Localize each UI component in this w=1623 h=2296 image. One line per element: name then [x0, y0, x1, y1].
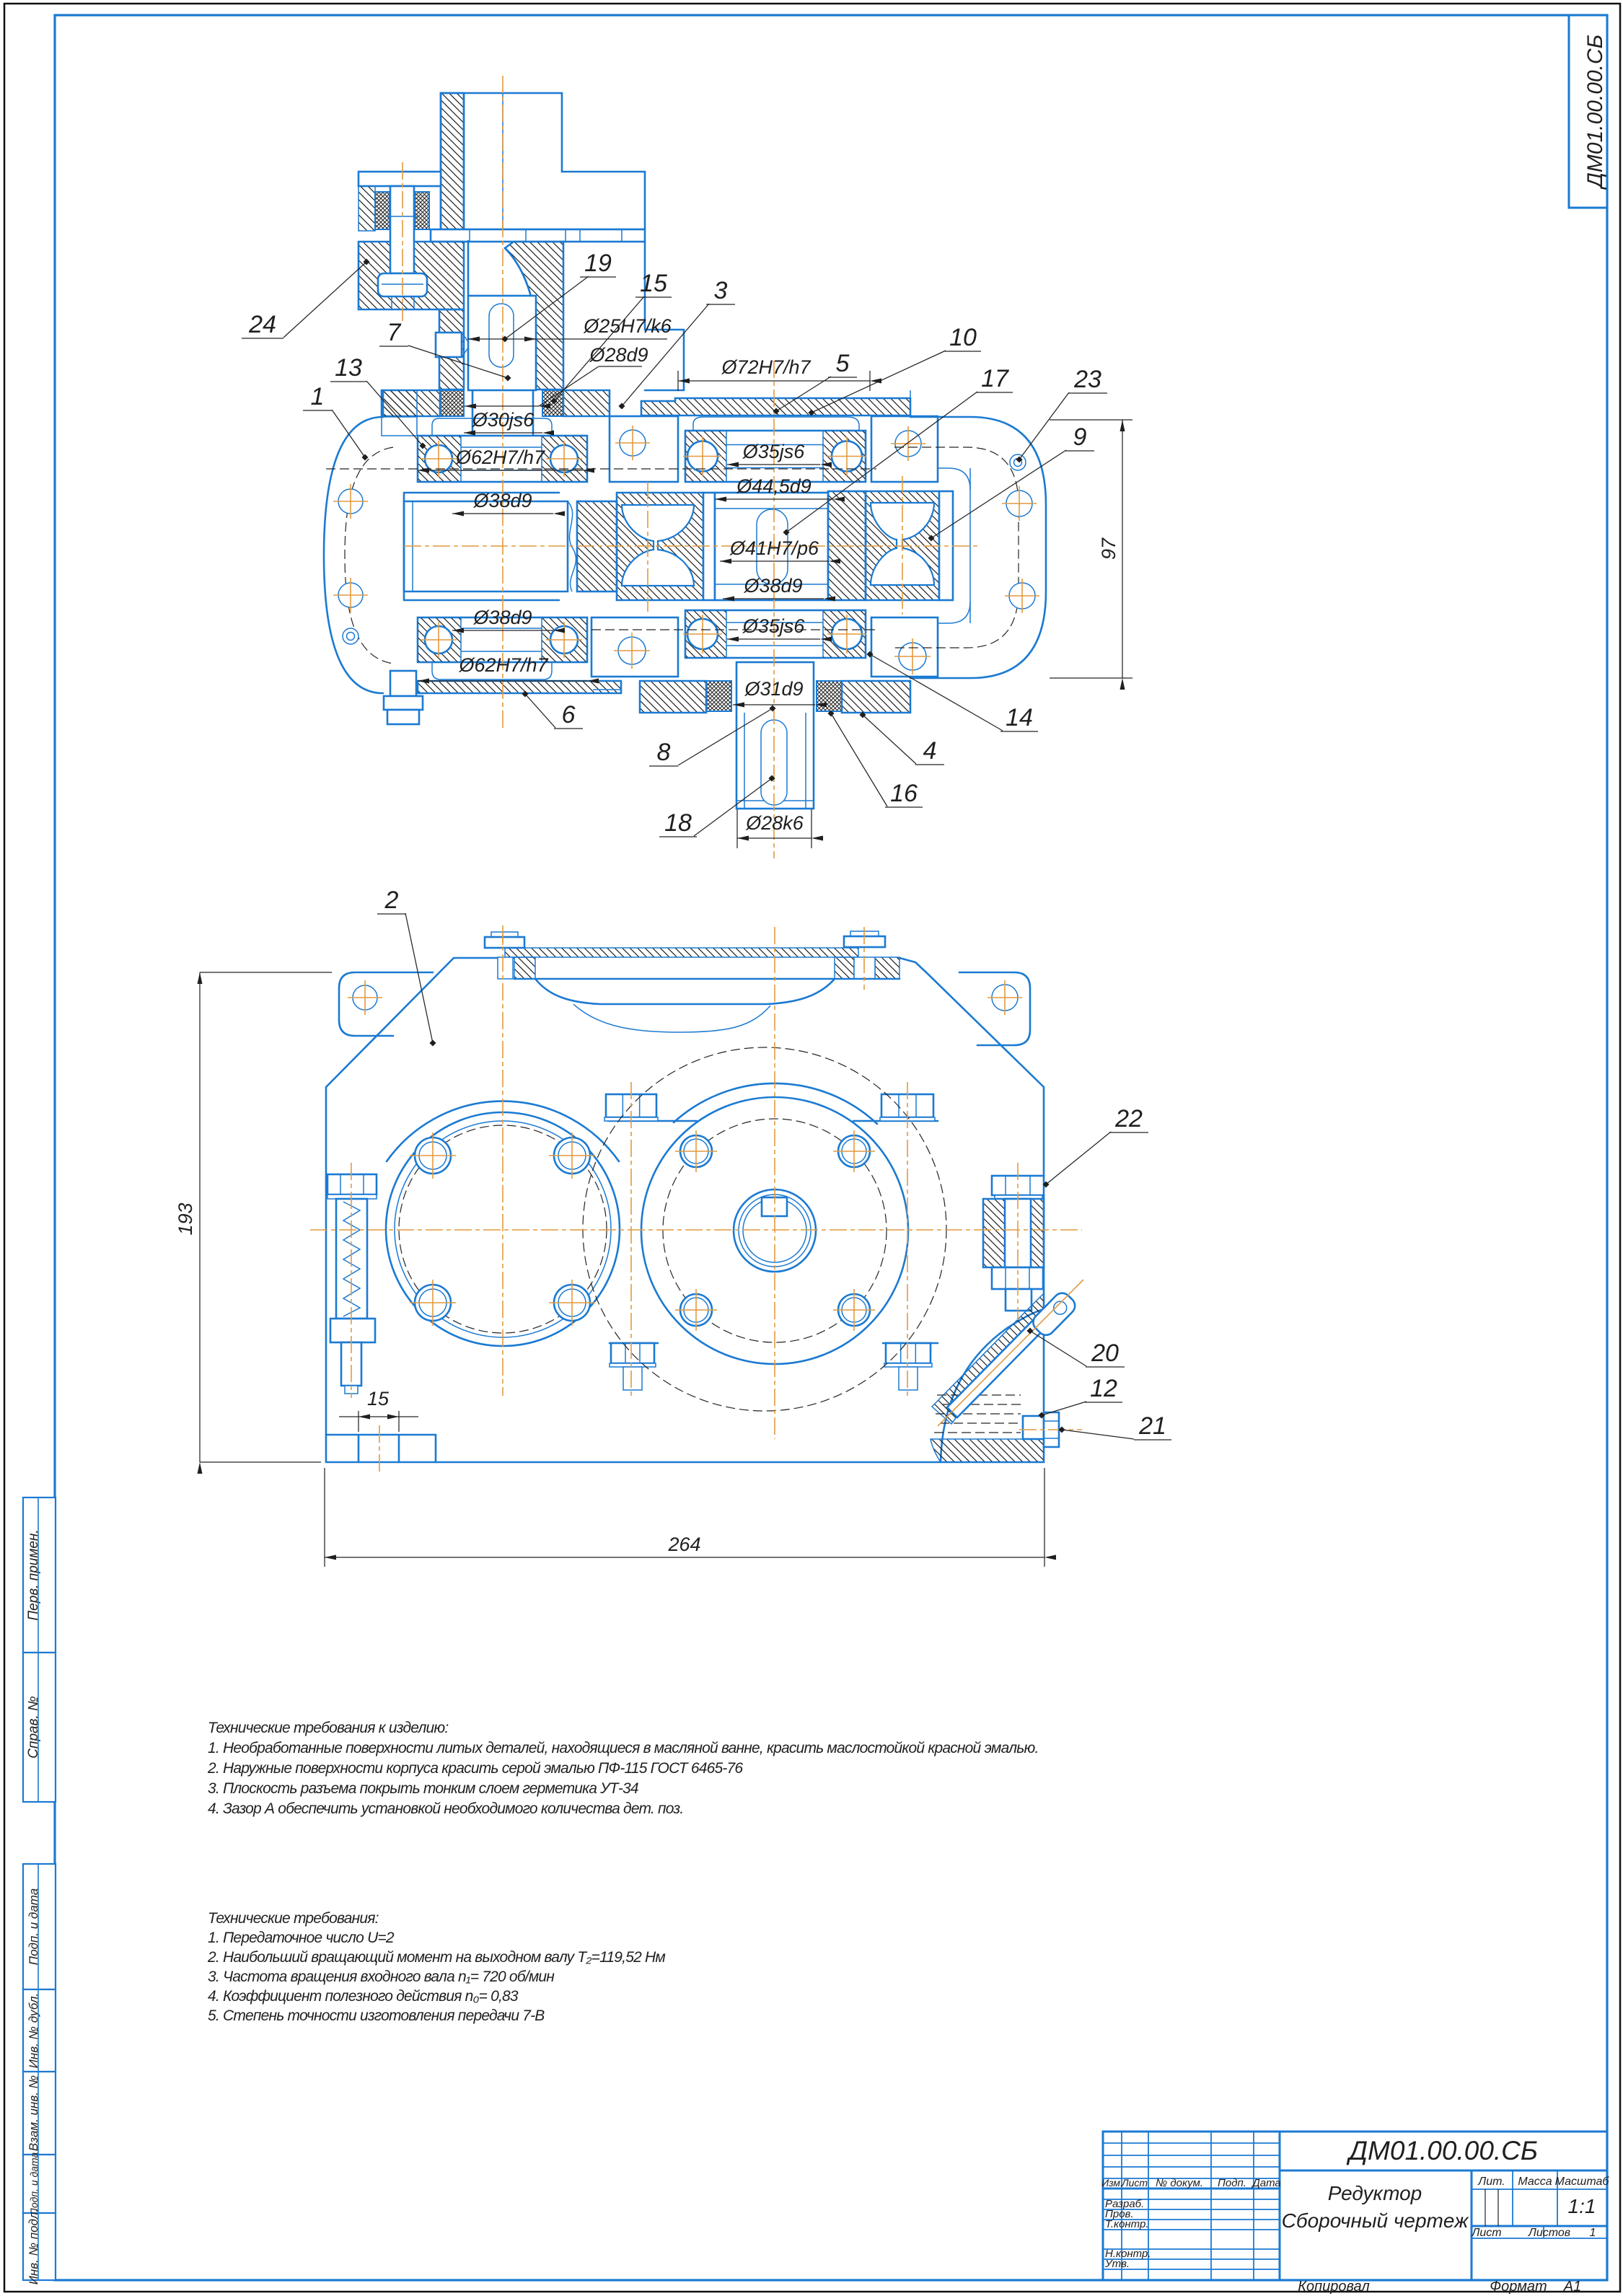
svg-text:Ø38d9: Ø38d9: [472, 490, 532, 511]
svg-text:1:1: 1:1: [1568, 2195, 1596, 2217]
svg-text:ДМ01.00.00.СБ: ДМ01.00.00.СБ: [1346, 2136, 1538, 2165]
svg-text:6: 6: [562, 701, 576, 729]
svg-text:4. Зазор А обеспечить установк: 4. Зазор А обеспечить установкой необход…: [208, 1800, 683, 1817]
svg-text:Сборочный чертеж: Сборочный чертеж: [1282, 2209, 1470, 2232]
svg-text:Ø72H7/h7: Ø72H7/h7: [721, 356, 811, 378]
svg-text:Дата: Дата: [1251, 2177, 1281, 2189]
svg-text:Перв. примен.: Перв. примен.: [26, 1529, 41, 1620]
svg-text:Ø28d9: Ø28d9: [589, 344, 648, 366]
svg-text:4. Коэффициент полезного дейст: 4. Коэффициент полезного действия n₀= 0,…: [208, 1988, 519, 2005]
svg-text:Подп.: Подп.: [1218, 2177, 1246, 2189]
svg-text:Формат: Формат: [1490, 2279, 1547, 2295]
svg-text:Справ. №: Справ. №: [26, 1696, 41, 1758]
svg-text:Редуктор: Редуктор: [1328, 2182, 1422, 2204]
svg-text:Ø25H7/k6: Ø25H7/k6: [583, 315, 672, 337]
svg-text:Лист: Лист: [1471, 2227, 1501, 2239]
svg-text:10: 10: [949, 324, 977, 351]
svg-text:Лит.: Лит.: [1477, 2176, 1505, 2188]
svg-text:Масштаб: Масштаб: [1555, 2176, 1610, 2188]
svg-text:3. Частота вращения входного в: 3. Частота вращения входного вала n₁= 72…: [208, 1969, 555, 1985]
svg-text:ДМ01.00.00.СБ: ДМ01.00.00.СБ: [1583, 35, 1607, 190]
svg-text:Масса: Масса: [1518, 2176, 1552, 2188]
svg-text:264: 264: [667, 1534, 700, 1555]
svg-text:7: 7: [387, 319, 402, 346]
svg-text:15: 15: [367, 1388, 390, 1409]
svg-text:Ø62H7/h7: Ø62H7/h7: [458, 654, 548, 676]
svg-text:Технические требования к издел: Технические требования к изделию:: [208, 1720, 448, 1736]
svg-text:19: 19: [584, 250, 612, 277]
svg-text:Ø44,5d9: Ø44,5d9: [736, 475, 811, 497]
svg-text:Ø38d9: Ø38d9: [743, 575, 802, 597]
svg-text:97: 97: [1098, 537, 1120, 560]
svg-text:21: 21: [1138, 1412, 1166, 1440]
svg-text:Ø35js6: Ø35js6: [742, 441, 806, 462]
svg-text:1: 1: [1590, 2227, 1596, 2239]
svg-text:3. Плоскость разъема покрыть т: 3. Плоскость разъема покрыть тонким слое…: [208, 1780, 638, 1797]
svg-text:№ докум.: № докум.: [1156, 2177, 1203, 2189]
svg-text:3: 3: [714, 277, 728, 304]
svg-text:4: 4: [923, 737, 937, 765]
svg-text:5: 5: [836, 350, 850, 377]
svg-text:Ø41H7/p6: Ø41H7/p6: [729, 537, 819, 559]
svg-text:Утв.: Утв.: [1104, 2258, 1130, 2270]
svg-text:2. Наибольший вращающий момент: 2. Наибольший вращающий момент на выходн…: [207, 1949, 665, 1966]
svg-text:14: 14: [1006, 704, 1033, 731]
svg-text:8: 8: [657, 739, 671, 766]
svg-text:17: 17: [981, 365, 1009, 392]
svg-text:5. Степень точности изготовлен: 5. Степень точности изготовления передач…: [208, 2007, 545, 2024]
svg-text:2. Наружные поверхности корпус: 2. Наружные поверхности корпуса красить …: [207, 1760, 743, 1777]
svg-text:A1: A1: [1563, 2279, 1581, 2295]
svg-text:1. Необработанные поверхности: 1. Необработанные поверхности литых дета…: [208, 1740, 1039, 1756]
svg-text:9: 9: [1073, 423, 1087, 451]
svg-text:Листов: Листов: [1528, 2227, 1570, 2239]
svg-text:24: 24: [248, 311, 276, 338]
svg-text:Технические требования:: Технические требования:: [208, 1910, 379, 1927]
svg-text:22: 22: [1114, 1105, 1143, 1132]
svg-text:18: 18: [664, 809, 692, 837]
svg-text:15: 15: [640, 270, 667, 297]
svg-text:Ø31d9: Ø31d9: [744, 678, 803, 700]
svg-text:20: 20: [1091, 1340, 1119, 1367]
svg-text:Изм.: Изм.: [1101, 2177, 1123, 2189]
svg-text:Ø28k6: Ø28k6: [745, 812, 804, 834]
svg-text:1. Передаточное число U=2: 1. Передаточное число U=2: [208, 1930, 395, 1946]
svg-text:Копировал: Копировал: [1298, 2279, 1369, 2295]
svg-text:193: 193: [175, 1202, 196, 1235]
svg-text:Т.контр.: Т.контр.: [1105, 2218, 1149, 2230]
svg-text:12: 12: [1090, 1375, 1117, 1402]
svg-text:23: 23: [1073, 366, 1101, 393]
svg-text:Ø30js6: Ø30js6: [472, 409, 535, 431]
svg-text:1: 1: [311, 383, 325, 410]
svg-text:13: 13: [335, 354, 362, 382]
svg-text:Лист: Лист: [1121, 2177, 1148, 2189]
svg-text:Ø38d9: Ø38d9: [472, 607, 532, 628]
svg-text:Ø62H7/h7: Ø62H7/h7: [455, 447, 545, 468]
svg-text:Ø35js6: Ø35js6: [742, 615, 806, 637]
svg-text:2: 2: [384, 887, 399, 914]
svg-text:16: 16: [890, 780, 918, 807]
